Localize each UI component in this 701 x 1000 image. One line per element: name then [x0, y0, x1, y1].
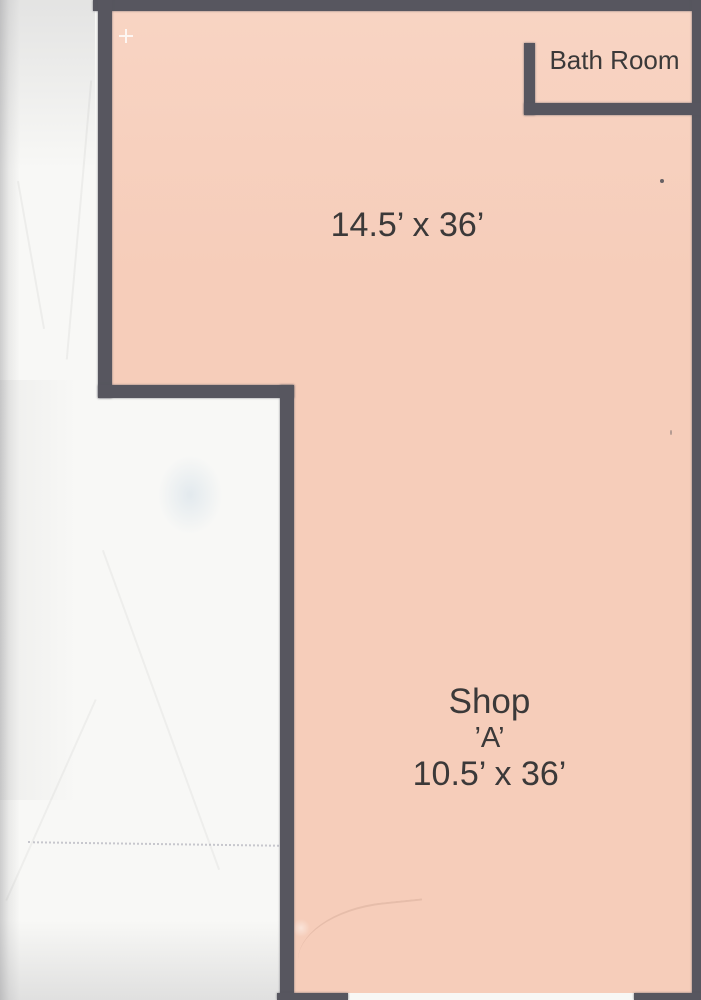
- wall-left: [98, 0, 112, 398]
- shop-name-label: Shop: [382, 684, 597, 720]
- wall-bottom-left-segment: [277, 993, 348, 1000]
- scan-speck: [660, 179, 664, 183]
- wall-top: [93, 0, 701, 11]
- shop-label-block: Shop ’A’ 10.5’ x 36’: [382, 684, 597, 792]
- wall-bottom-right-segment: [634, 993, 701, 1000]
- paper-shadow: [0, 920, 280, 1000]
- bathroom-label: Bath Room: [537, 45, 692, 76]
- registration-plus-mark: [119, 29, 133, 43]
- wall-right: [692, 0, 701, 1000]
- paper-crease: [102, 550, 220, 870]
- paper-crease: [5, 699, 96, 901]
- wall-step-vertical: [280, 385, 294, 1000]
- upper-area-dimensions-label: 14.5’ x 36’: [300, 206, 515, 245]
- scanned-floor-plan: Bath Room 14.5’ x 36’ Shop ’A’ 10.5’ x 3…: [0, 0, 701, 1000]
- paper-edge-shadow: [0, 0, 20, 1000]
- ink-smudge: [145, 440, 235, 550]
- shop-dimensions-label: 10.5’ x 36’: [382, 756, 597, 792]
- paper-crease: [66, 80, 92, 359]
- wall-bathroom-bottom: [524, 103, 701, 115]
- paper-shadow: [0, 380, 110, 800]
- paper-shadow: [0, 0, 95, 170]
- scan-speck: [670, 430, 672, 435]
- paper-crease: [17, 181, 45, 329]
- shop-unit-label: ’A’: [382, 720, 597, 756]
- paper-crease-dotted: [28, 841, 283, 847]
- wall-step-horizontal: [98, 385, 294, 398]
